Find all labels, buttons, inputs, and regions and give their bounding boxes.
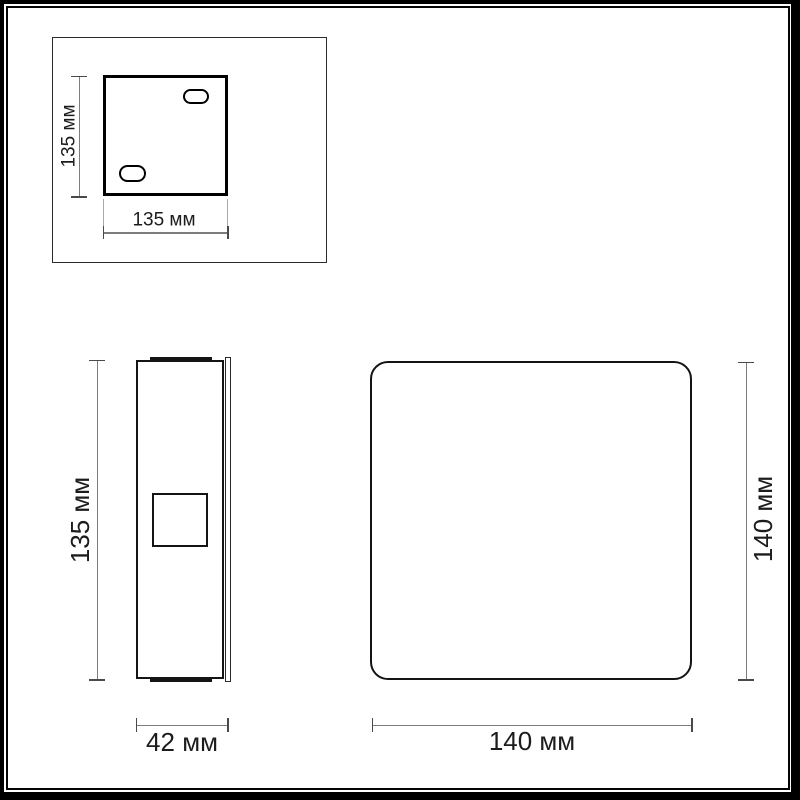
- front-height-dim-cap-bottom: [738, 679, 754, 681]
- front-height-label: 140 мм: [750, 476, 776, 562]
- side-height-dim-cap-top: [89, 360, 105, 362]
- plate-width-dim-cap-left: [103, 226, 105, 239]
- plate-height-dim-cap-top: [71, 76, 87, 78]
- plate-width-dim-cap-right: [227, 226, 229, 239]
- front-height-dim-cap-top: [738, 362, 754, 364]
- plate-width-dimension-line: [103, 232, 228, 234]
- plate-height-label: 135 мм: [60, 104, 79, 167]
- front-width-dim-cap-right: [691, 718, 693, 732]
- plate-width-label: 135 мм: [132, 211, 195, 230]
- side-tab-bottom: [150, 677, 212, 682]
- mounting-slot-bottom-left: [119, 165, 146, 182]
- front-height-dimension-line: [746, 362, 748, 680]
- side-junction-box: [152, 493, 208, 547]
- mounting-slot-top-right: [183, 89, 209, 104]
- side-tab-top: [150, 357, 212, 362]
- side-depth-dimension-line: [136, 725, 228, 727]
- side-depth-label: 42 мм: [146, 729, 218, 755]
- front-width-dim-cap-left: [372, 718, 374, 732]
- front-width-label: 140 мм: [489, 728, 575, 754]
- plate-height-dim-cap-bottom: [71, 196, 87, 198]
- side-cover-plate-edge: [225, 357, 231, 682]
- side-depth-dim-cap-right: [227, 718, 229, 732]
- side-height-dimension-line: [97, 360, 99, 680]
- side-depth-dim-cap-left: [136, 718, 138, 732]
- side-height-dim-cap-bottom: [89, 679, 105, 681]
- dimension-diagram: 135 мм 135 мм 135 мм 42 мм: [0, 0, 800, 800]
- side-height-label: 135 мм: [67, 477, 93, 563]
- front-panel-outline: [370, 361, 692, 680]
